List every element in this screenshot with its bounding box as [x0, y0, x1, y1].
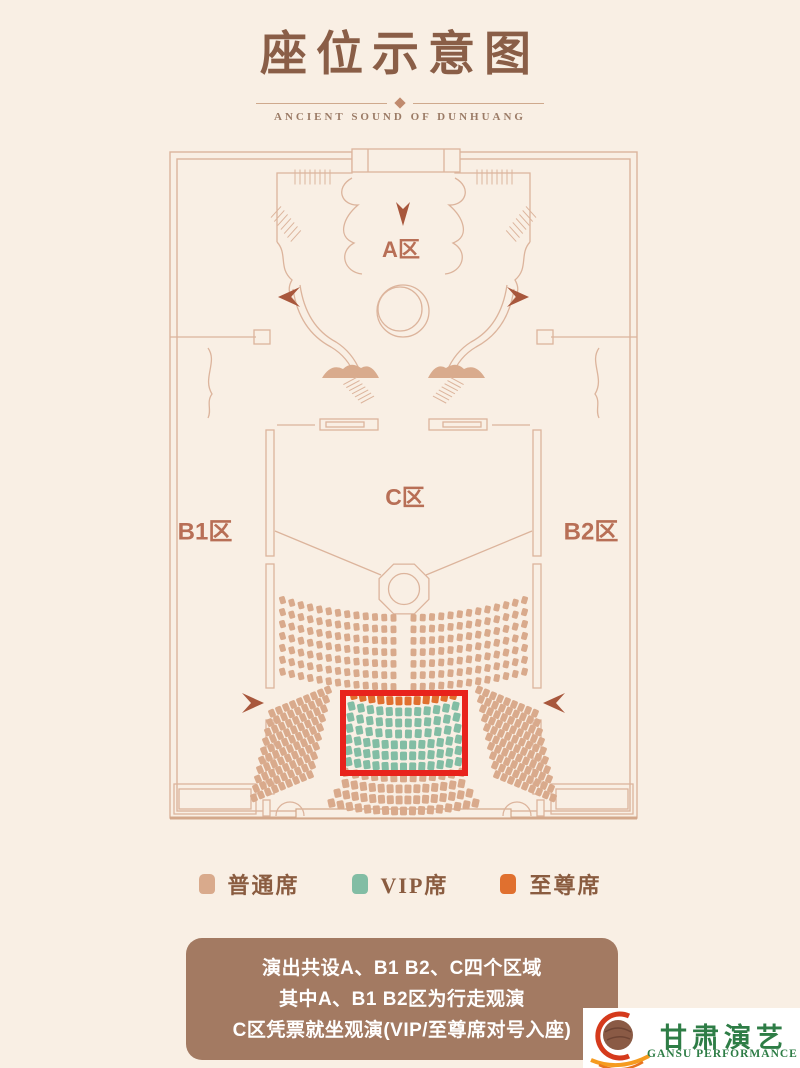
gansu-performance-logo: 甘肃演艺 GANSU PERFORMANCE: [583, 1008, 800, 1068]
info-box: 演出共设A、B1 B2、C四个区域 其中A、B1 B2区为行走观演 C区凭票就坐…: [186, 938, 618, 1060]
flow-arrow-right-icon: [242, 693, 264, 713]
legend-label: VIP席: [381, 868, 449, 900]
supreme-seat-swatch: [500, 874, 516, 894]
seat-section-center: [327, 690, 480, 815]
legend-label: 至尊席: [529, 868, 601, 900]
legend-item-vip: VIP席: [352, 868, 449, 900]
seat-section-upper-left: [279, 596, 397, 691]
vip-seat-swatch: [352, 874, 368, 894]
seat-section-upper-right: [410, 596, 528, 691]
center-octagon-stage: [379, 564, 429, 614]
info-line-2: 其中A、B1 B2区为行走观演: [186, 984, 618, 1015]
normal-seat-swatch: [199, 874, 215, 894]
seat-legend: 普通席 VIP席 至尊席: [0, 868, 800, 900]
zone-label-b2: B2区: [564, 512, 619, 547]
plan-center: [352, 149, 460, 614]
legend-item-normal: 普通席: [199, 868, 300, 900]
zone-label-b1: B1区: [178, 512, 233, 547]
floor-plan: [0, 0, 800, 1068]
legend-item-supreme: 至尊席: [500, 868, 601, 900]
info-line-3: C区凭票就坐观演(VIP/至尊席对号入座): [186, 1015, 618, 1046]
zone-label-c: C区: [385, 478, 425, 512]
info-line-1: 演出共设A、B1 B2、C四个区域: [186, 953, 618, 984]
seat-sections: [250, 596, 558, 816]
logo-name-en: GANSU PERFORMANCE: [647, 1048, 797, 1060]
legend-label: 普通席: [228, 868, 300, 900]
entry-arrow-down-icon: [396, 202, 410, 226]
poster: 座位示意图 ANCIENT SOUND OF DUNHUANG: [0, 0, 800, 1068]
zone-label-a: A区: [382, 232, 420, 264]
